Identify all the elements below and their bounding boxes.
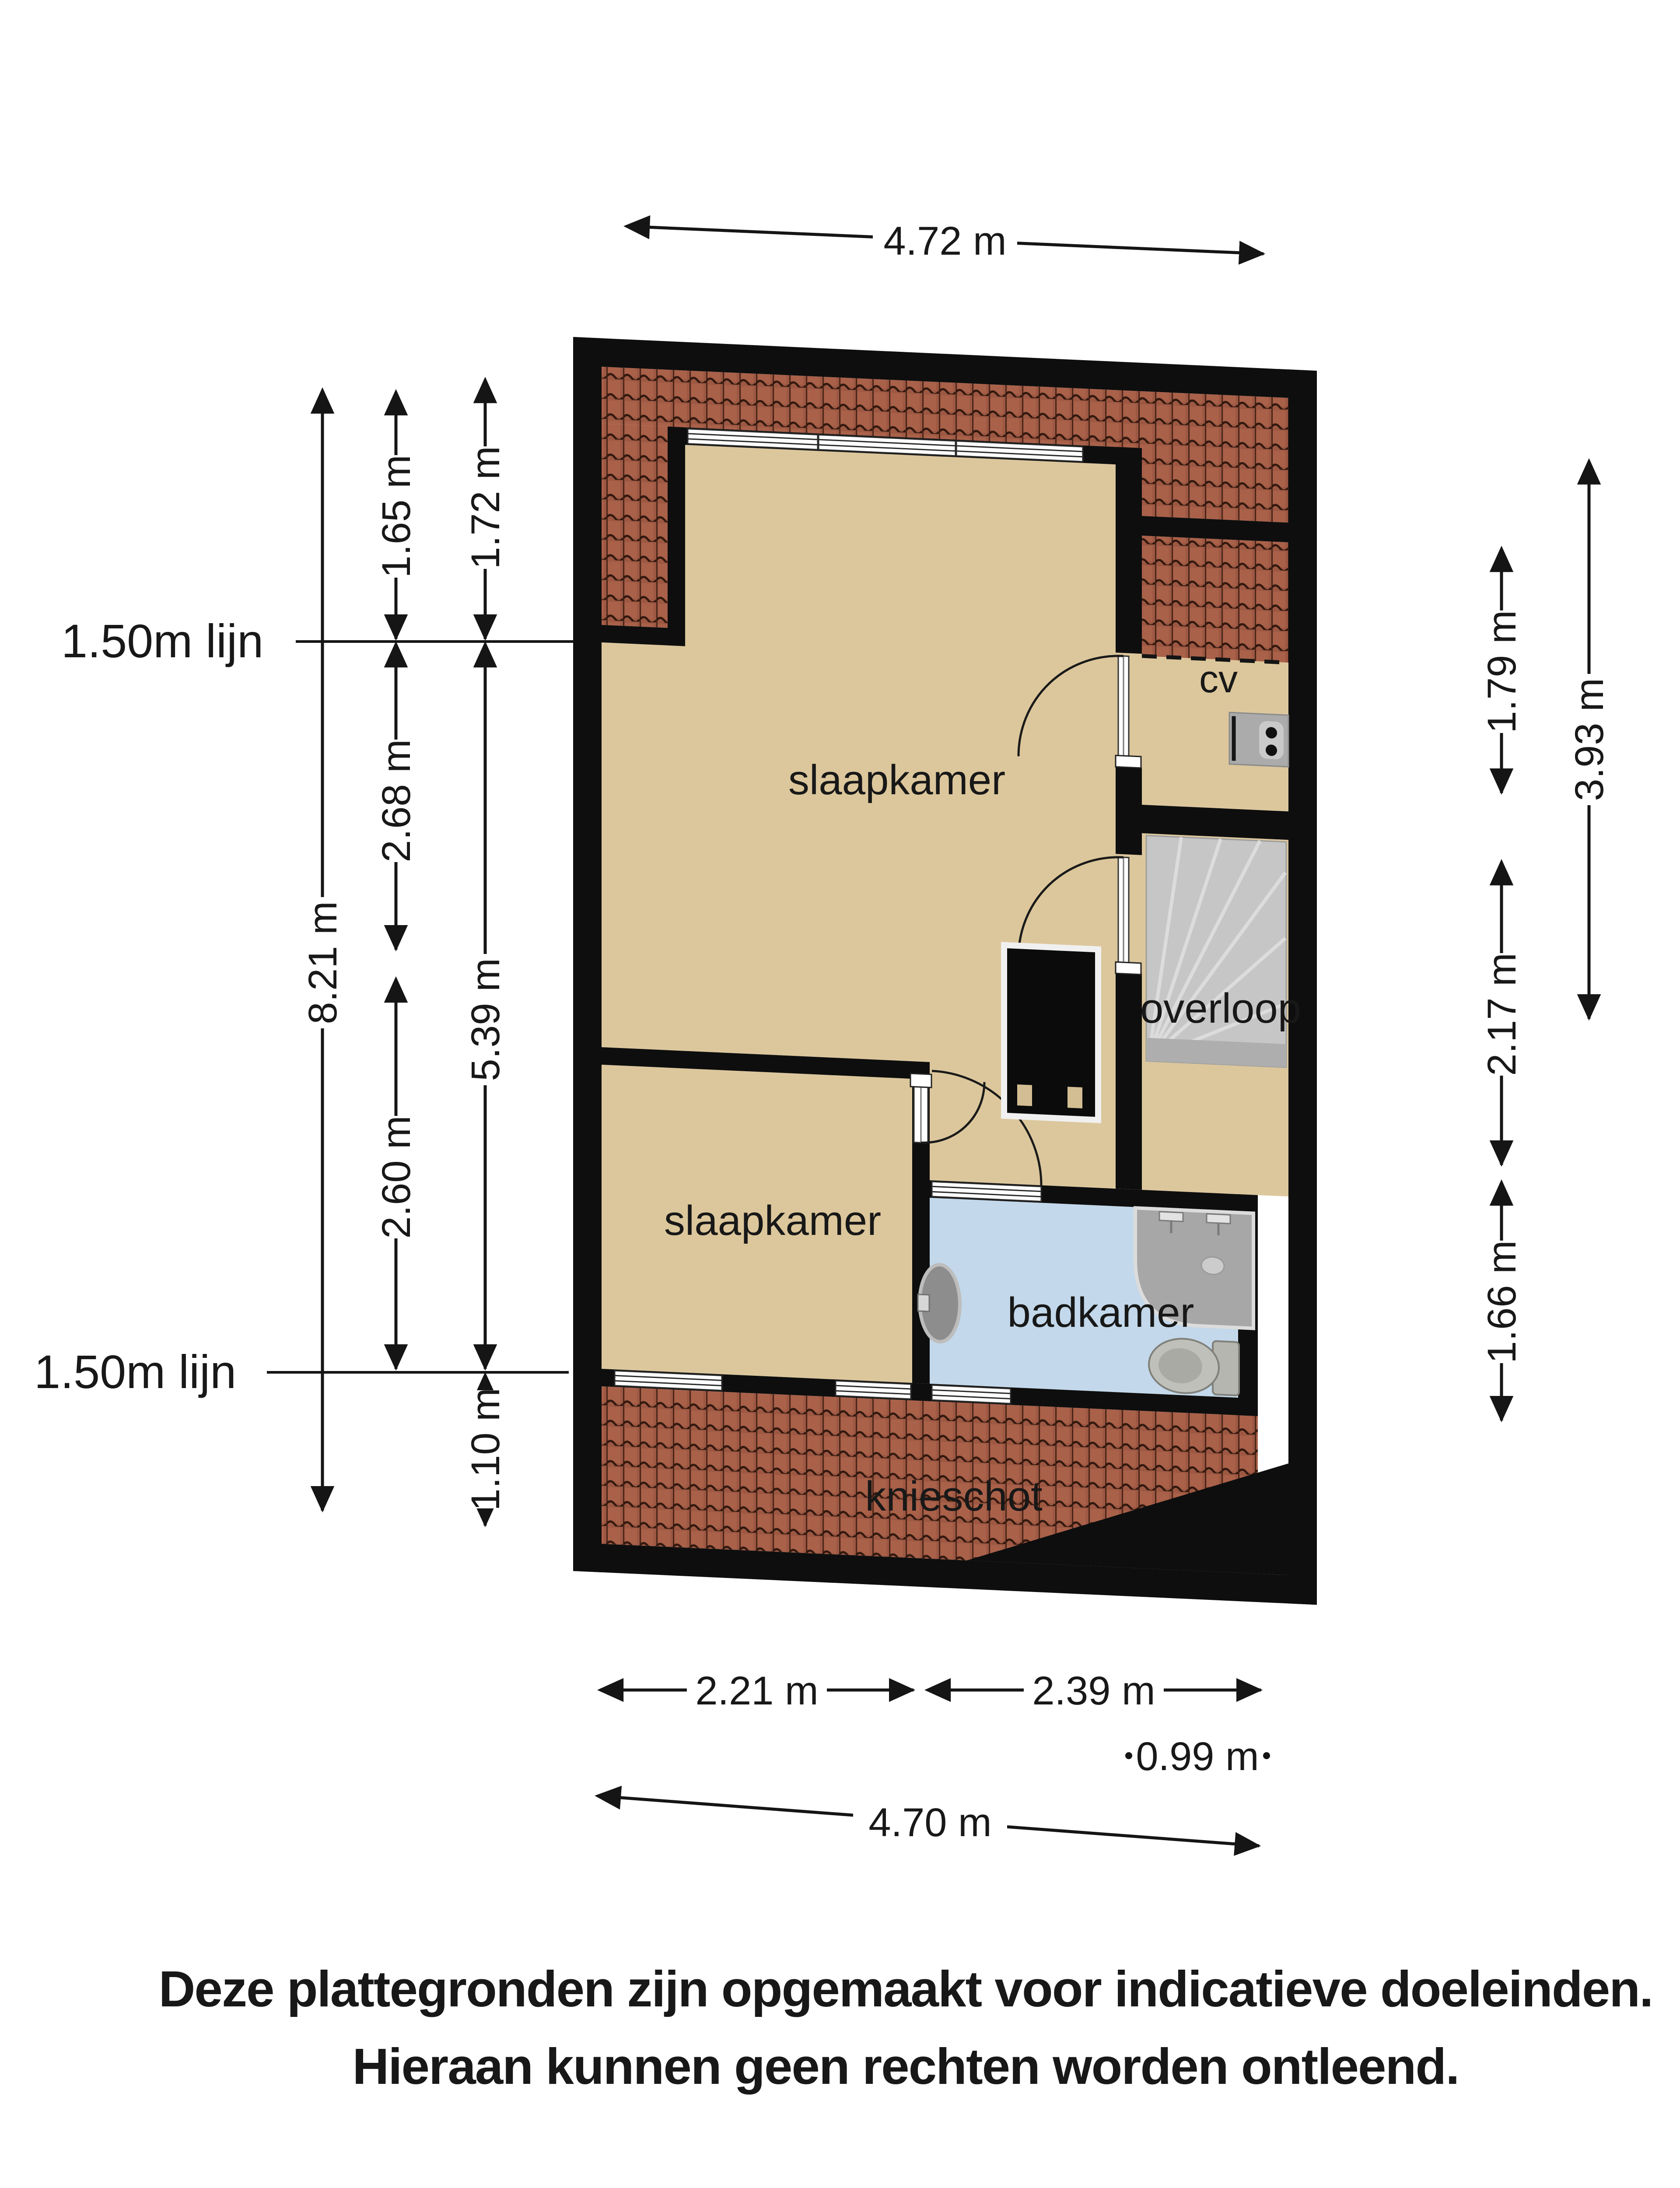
dim-left-172: 1.72 m [463, 446, 508, 569]
label-150-lijn-bottom: 1.50m lijn [34, 1345, 236, 1398]
dim-bottom-total: 4.70 m [868, 1800, 991, 1845]
toilet-icon [1149, 1337, 1239, 1396]
label-bathroom: badkamer [1008, 1289, 1194, 1336]
disclaimer-line1: Deze plattegronden zijn opgemaakt voor i… [159, 1960, 1653, 2017]
dim-left-165: 1.65 m [374, 455, 419, 578]
label-bedroom-bottom: slaapkamer [664, 1197, 881, 1244]
dim-tick-right [1263, 1752, 1270, 1759]
dim-bottom-221: 2.21 m [695, 1669, 818, 1713]
roof-right-cv [1142, 536, 1288, 663]
dim-left-110: 1.10 m [463, 1388, 508, 1511]
window-knieschot-bathroom [932, 1385, 1011, 1403]
dim-left-268: 2.68 m [374, 739, 419, 862]
dark-cabinet-icon [1004, 945, 1098, 1120]
sink-icon [918, 1264, 960, 1343]
dim-bottom-099: 0.99 m [1136, 1734, 1259, 1779]
dim-bottom-239: 2.39 m [1032, 1669, 1155, 1713]
label-knieschot: knieschot [865, 1473, 1043, 1520]
dim-right-166: 1.66 m [1480, 1240, 1524, 1363]
floorplan-canvas: slaapkamer slaapkamer badkamer overloop … [0, 0, 1680, 2188]
dim-top-total: 4.72 m [883, 219, 1006, 263]
dim-left-total: 8.21 m [301, 901, 345, 1024]
label-landing: overloop [1140, 985, 1301, 1032]
floorplan-body [573, 337, 1317, 1605]
label-bedroom-top: slaapkamer [788, 757, 1005, 803]
roof-notch-left [602, 424, 668, 628]
disclaimer-line2: Hieraan kunnen geen rechten worden ontle… [353, 2038, 1459, 2095]
roof-right-upper [1142, 391, 1288, 522]
dim-right-179: 1.79 m [1480, 610, 1524, 733]
dim-right-217: 2.17 m [1480, 953, 1524, 1076]
wall-notch-vertical [668, 427, 685, 646]
dim-right-total: 3.93 m [1567, 678, 1612, 801]
dim-left-260: 2.60 m [374, 1115, 419, 1238]
dim-left-539: 5.39 m [463, 958, 508, 1081]
boiler-icon [1229, 712, 1288, 767]
window-knieschot-middle [836, 1381, 911, 1399]
dim-tick-left [1125, 1752, 1132, 1759]
label-cv: cv [1199, 657, 1238, 701]
floorplan-page: { "page": {"background": "#ffffff"}, "pl… [0, 0, 1680, 2188]
label-150-lijn-top: 1.50m lijn [61, 614, 263, 667]
stairs-icon [1146, 835, 1286, 1067]
